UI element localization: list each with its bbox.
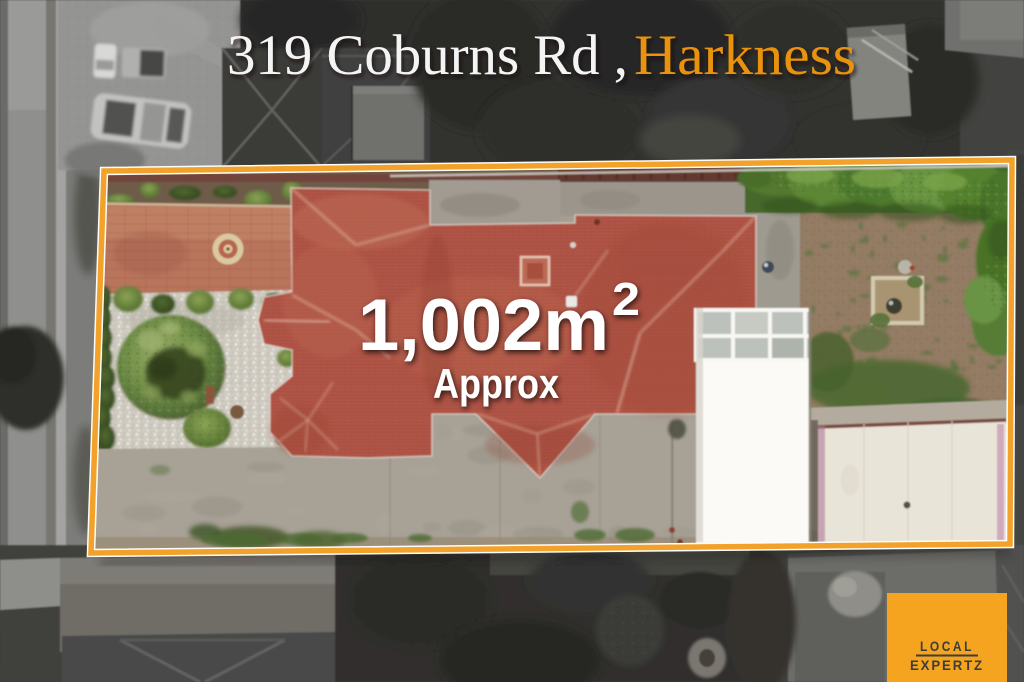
svg-text:319 Coburns Rd ,: 319 Coburns Rd , xyxy=(227,24,628,87)
svg-text:Harkness: Harkness xyxy=(634,24,856,87)
svg-text:EXPERTZ: EXPERTZ xyxy=(910,657,984,673)
svg-text:2: 2 xyxy=(612,273,640,325)
svg-text:Approx: Approx xyxy=(433,360,560,407)
svg-text:1,002m: 1,002m xyxy=(358,285,609,366)
svg-text:LOCAL: LOCAL xyxy=(920,638,974,654)
